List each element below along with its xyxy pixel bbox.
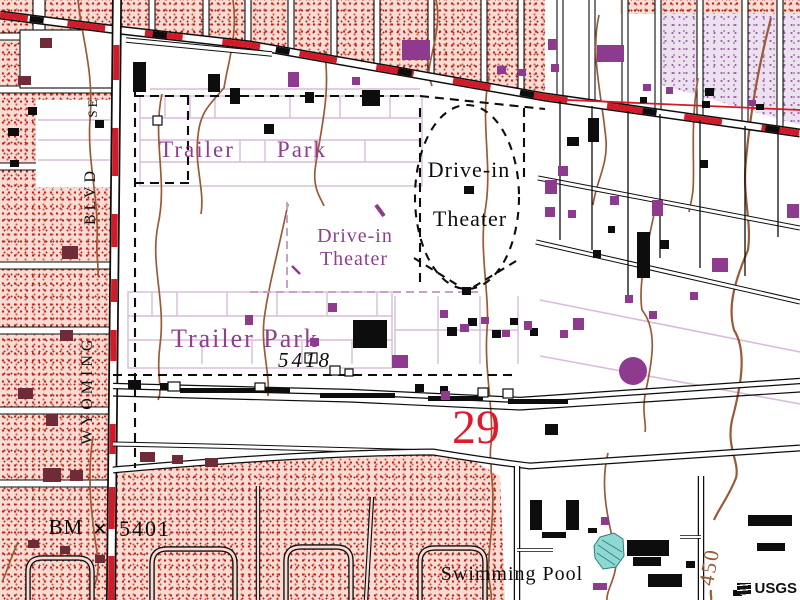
drive-in-theater-revised-label-line2: Theater — [320, 248, 388, 270]
benchmark-prefix-label: BM — [49, 515, 84, 539]
spot-elevation-label: 5418 — [278, 348, 332, 372]
drive-in-theater-revised-label-line1: Drive-in — [317, 225, 393, 247]
roads — [0, 0, 800, 600]
street-name-blvd: BLVD — [82, 167, 99, 225]
tank-circle — [619, 357, 647, 385]
drive-in-theater-label-line1: Drive-in — [428, 157, 511, 182]
section-number-label: 29 — [452, 401, 500, 454]
map-linework: Trailer Park Trailer Park Drive-in Theat… — [0, 0, 800, 600]
benchmark-x-icon: × — [93, 516, 107, 543]
drive-in-theater-label-line2: Theater — [433, 206, 507, 231]
street-name-se: SE — [85, 96, 100, 117]
swimming-pool-water — [594, 533, 624, 569]
street-name-wyoming: WYOMING — [79, 336, 96, 445]
usgs-flag-icon — [737, 583, 751, 595]
swimming-pool-label: Swimming Pool — [441, 563, 583, 585]
benchmark-elevation-label: 5401 — [119, 516, 171, 541]
trailer-park-top-label: Trailer — [159, 137, 235, 162]
topo-map: Trailer Park Trailer Park Drive-in Theat… — [0, 0, 800, 600]
usgs-watermark: USGS — [737, 580, 797, 597]
trailer-park-top-label2: Park — [277, 137, 327, 162]
usgs-watermark-text: USGS — [754, 580, 797, 597]
contour-elevation-label: 450 — [694, 546, 724, 587]
